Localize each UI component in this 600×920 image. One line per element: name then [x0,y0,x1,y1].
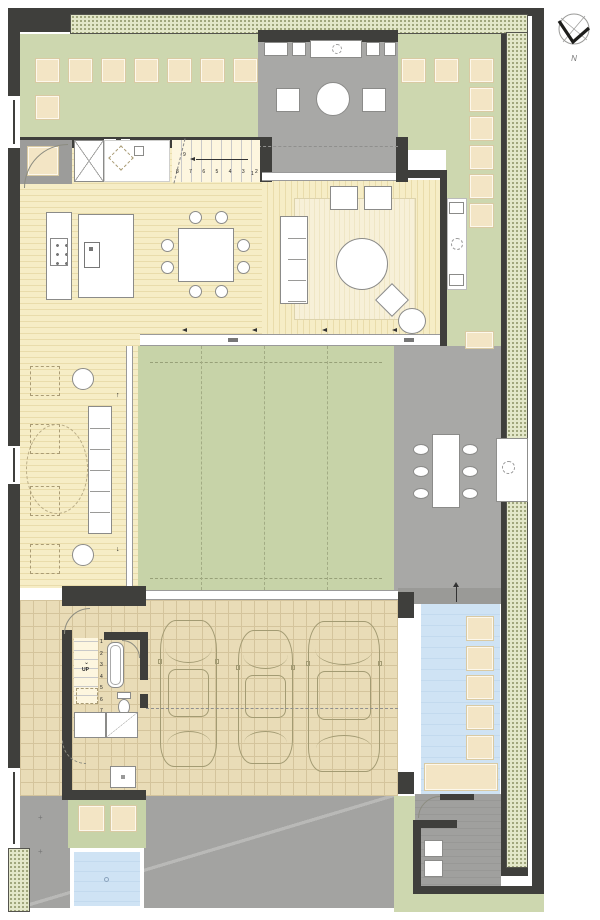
up-chevron: ⌄ [84,660,89,666]
shower-lintel [440,794,474,800]
deck-bench [88,406,112,534]
stepping-stone [69,59,92,82]
wall-utility-west [62,630,72,796]
patio-chair [413,488,429,499]
wall-east-outer [532,8,544,892]
wall-utility-south [62,790,146,800]
shower-bench [424,840,443,857]
sofa [280,216,308,304]
utility-fixture-dot [121,775,125,779]
stepping-stone [470,204,493,227]
wall-living-north [396,170,446,178]
courtyard-dash [150,362,382,363]
slide-arrow [182,328,187,332]
lounger-outline [30,544,60,574]
hedge-southwest [8,848,30,912]
bbq-burner [502,461,515,474]
garage-stair-label: UP [82,668,89,673]
dining-chair [161,239,174,252]
garage-glass-north [146,590,398,600]
door-slide-arrow-down: ↓ [116,546,120,553]
car [238,630,293,764]
tree-canopy-outline [26,424,88,514]
terrace-planter [292,42,306,56]
armchair [330,186,358,210]
stepping-stone [111,806,136,831]
dining-chair [161,261,174,274]
stair-run-numbers: 8 7 6 5 4 3 2 [176,170,262,175]
fireplace-box [449,274,464,286]
stair-void-outline [76,688,98,704]
deck-side-table [72,368,94,390]
stair-first-number: 1 [251,172,254,177]
living-sliding-wall [140,334,440,346]
stepping-stone [36,59,59,82]
patio-arrow-line [456,586,457,602]
bench-segments [90,408,110,532]
wall-bath-east [140,694,148,708]
terrace-planter [366,42,380,56]
storage-cabinet [74,712,106,738]
patio-dining-table [432,434,460,508]
stepping-stone [470,59,493,82]
island-hob-dot [89,247,93,251]
stepping-stone [466,332,493,348]
fireplace-box [449,202,464,214]
stepping-stone [470,88,493,111]
north-compass: N [552,8,596,66]
terrace-chair [362,88,386,112]
wall-garage-north [62,586,146,606]
stepping-stone [201,59,224,82]
garage-post-ne [398,592,414,618]
storage-cabinet-reserved [106,712,138,738]
dining-chair [189,211,202,224]
pool-stone [467,676,493,699]
deck-side-table [72,544,94,566]
dashed-door-swing [62,740,86,764]
roof-dash-line [258,146,398,147]
sofa-cushions [288,218,306,302]
terrace-sliding-door [262,172,396,181]
floor-plan: 9 8 7 6 5 4 3 2 1 ↑ ↓ [0,0,600,920]
terrace-planter [384,42,396,56]
dining-chair [237,261,250,274]
survey-mark: + [38,814,43,822]
courtyard-dash [327,346,328,590]
dining-chair [215,285,228,298]
wall-shower-v [413,828,421,894]
bathtub-inner [110,645,121,685]
dining-chair [215,211,228,224]
courtyard-dash [201,346,202,590]
pool-stone [467,706,493,729]
sliding-handle [404,338,414,342]
wall-south-east [413,886,544,894]
terrace-planter [264,42,288,56]
dining-table [178,228,234,282]
coffee-table [336,238,388,290]
pantry-fixture [134,146,144,156]
patio-arrow-head [453,582,459,587]
pool-walkway [398,604,421,796]
car [308,621,380,772]
slide-arrow [322,328,327,332]
stepping-stone [36,96,59,119]
pool-stone [467,647,493,670]
stair-direction-arrow [190,157,195,161]
garage-post-se [398,772,414,794]
door-slide-arrow-up: ↑ [116,392,120,399]
garden-south [394,894,544,912]
pool-stone [467,617,493,640]
main-staircase [172,140,260,182]
stepping-stone [470,175,493,198]
shower-door-swing [418,796,440,818]
stair-direction-line [196,159,248,160]
fireplace-flue [451,238,463,250]
compass-icon [552,8,596,52]
dining-chair [189,285,202,298]
island-hob [84,242,100,268]
entry-closet [74,140,104,182]
hedge-east-cap [506,868,528,876]
terrace-table [316,82,350,116]
shower-bench [424,860,443,877]
entry-door-swing [24,144,68,188]
stepping-stone [234,59,257,82]
slide-arrow [392,328,397,332]
courtyard-dash [264,346,265,590]
compass-label: N [552,54,596,63]
patio-chair [413,444,429,455]
bath-door-swing [122,640,140,658]
wall-bath-east [140,632,148,680]
stepping-stone [102,59,125,82]
armchair [364,186,392,210]
garden-sliver-southeast [394,796,415,908]
wall-living-east [440,170,447,346]
stepping-stone [79,806,104,831]
lounge-chair [398,308,426,334]
deck-sliding-wall [126,346,133,588]
dining-chair [237,239,250,252]
survey-mark: + [38,848,43,856]
cooktop [50,238,68,266]
stepping-stone [402,59,425,82]
stepping-stone [135,59,158,82]
patio-chair [462,444,478,455]
stepping-stone [435,59,458,82]
window-glazing [13,100,15,144]
courtyard-dash [150,578,382,579]
patio-chair [413,466,429,477]
terrace-chair [276,88,300,112]
bathtub [107,642,124,688]
pool-drain [104,877,109,882]
patio-chair [462,488,478,499]
slide-arrow [252,328,257,332]
wall-shower-h [413,820,457,828]
garage-dash-line [146,708,398,709]
gate-leaf [13,772,15,844]
stepping-stone [470,117,493,140]
sliding-handle [228,338,238,342]
courtyard-lawn [138,346,394,590]
door-leaf [13,448,15,482]
stepping-stone [168,59,191,82]
terrace-sink [332,44,342,54]
patio-chair [462,466,478,477]
pool-stone [467,736,493,759]
car [160,620,217,767]
pool-deck-pad [425,764,497,790]
toilet-tank [117,692,131,699]
stepping-stone [470,146,493,169]
lounger-outline [30,366,60,396]
hall-door-swing [64,608,90,634]
stair-top-number: 9 [183,153,186,158]
